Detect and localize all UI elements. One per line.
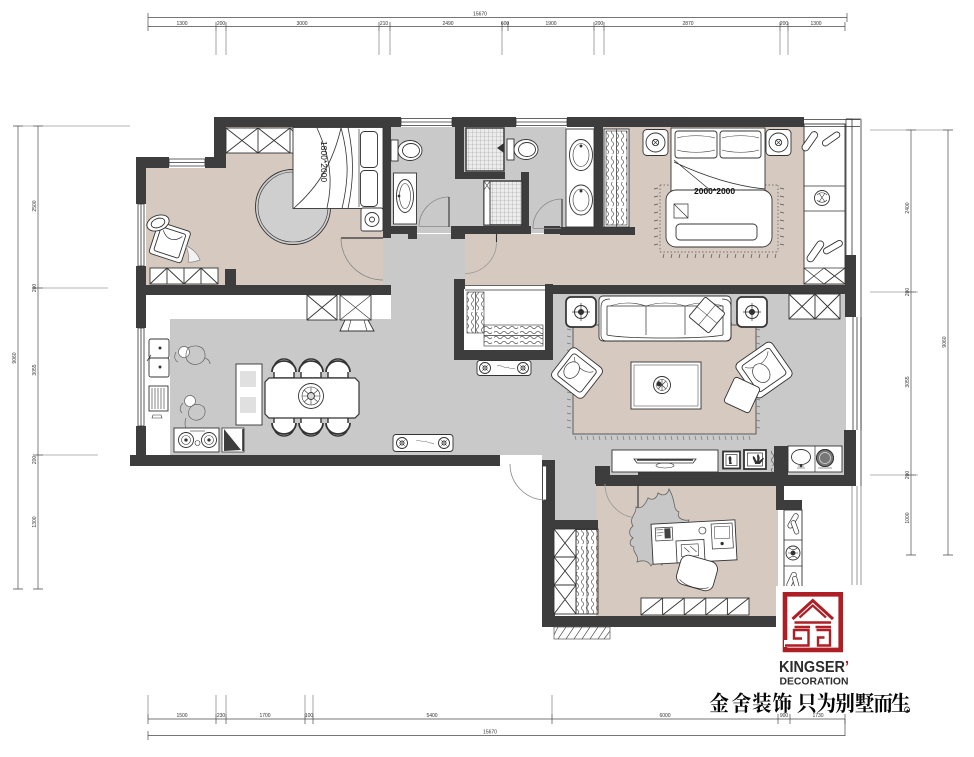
svg-text:1300: 1300: [176, 21, 187, 27]
svg-text:200: 200: [32, 284, 38, 293]
svg-text:100: 100: [305, 713, 314, 719]
svg-text:9060: 9060: [12, 352, 18, 363]
svg-text:1730: 1730: [812, 713, 823, 719]
svg-text:3055: 3055: [905, 376, 911, 387]
svg-text:2490: 2490: [442, 21, 453, 27]
svg-text:2500: 2500: [32, 200, 38, 211]
svg-text:3000: 3000: [296, 21, 307, 27]
svg-text:1300: 1300: [32, 516, 38, 527]
svg-text:210: 210: [380, 21, 389, 27]
svg-text:2870: 2870: [682, 21, 693, 27]
svg-text:200: 200: [905, 471, 911, 480]
svg-text:2400: 2400: [905, 202, 911, 213]
svg-text:900: 900: [780, 713, 789, 719]
svg-text:15670: 15670: [473, 12, 487, 18]
svg-text:DECORATION: DECORATION: [780, 677, 849, 688]
svg-text:1800*2000: 1800*2000: [319, 141, 329, 182]
svg-text:200: 200: [32, 456, 38, 465]
svg-text:1300: 1300: [810, 21, 821, 27]
svg-text:5400: 5400: [426, 713, 437, 719]
svg-text:200: 200: [595, 21, 604, 27]
svg-text:6000: 6000: [659, 713, 670, 719]
svg-text:230: 230: [217, 713, 226, 719]
svg-text:2000*2000: 2000*2000: [694, 186, 735, 196]
svg-text:9060: 9060: [942, 336, 948, 347]
svg-text:1700: 1700: [259, 713, 270, 719]
svg-text:1500: 1500: [176, 713, 187, 719]
svg-text:200: 200: [905, 288, 911, 297]
svg-text:200: 200: [780, 21, 789, 27]
svg-text:600: 600: [501, 21, 510, 27]
svg-text:1000: 1000: [905, 512, 911, 523]
svg-text:1900: 1900: [545, 21, 556, 27]
svg-text:200: 200: [217, 21, 226, 27]
svg-text:3055: 3055: [32, 364, 38, 375]
svg-text:KINGSER’: KINGSER’: [779, 659, 849, 676]
svg-text:15670: 15670: [483, 730, 497, 736]
